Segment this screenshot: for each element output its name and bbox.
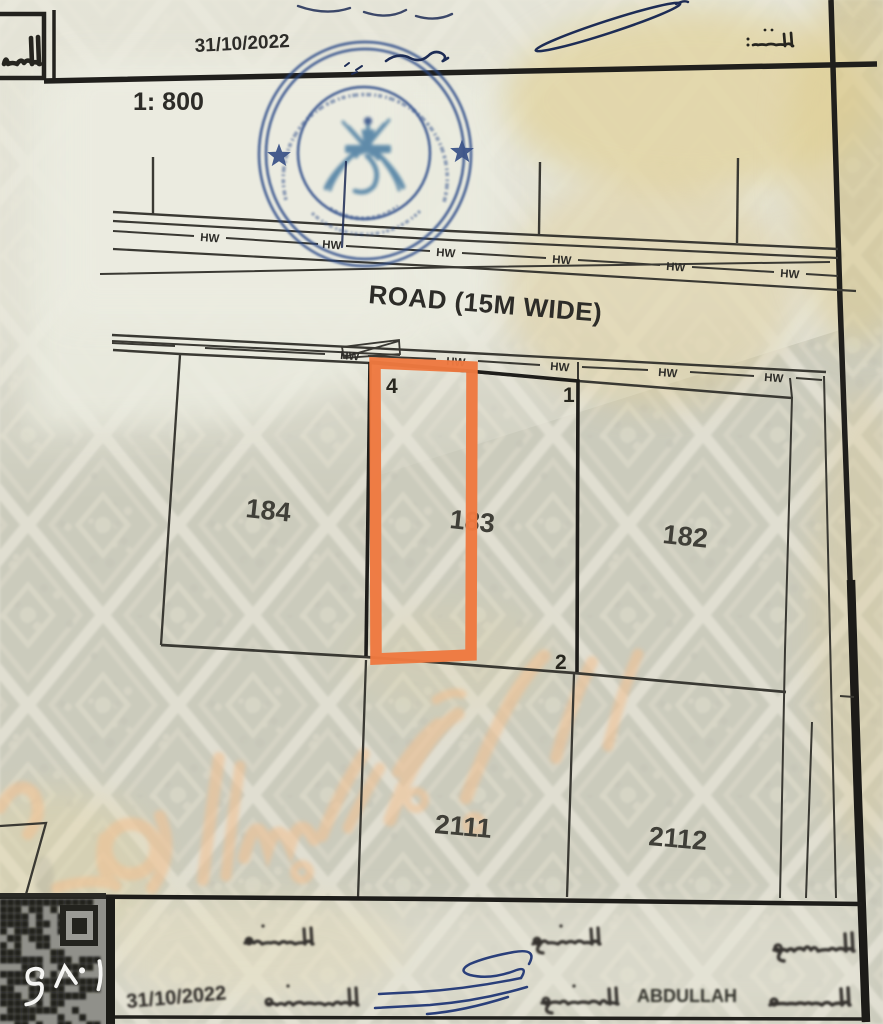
svg-text:HW: HW bbox=[666, 261, 686, 274]
svg-text:2111: 2111 bbox=[433, 809, 492, 844]
svg-text:HW: HW bbox=[550, 361, 570, 374]
svg-text:HW: HW bbox=[764, 372, 784, 385]
svg-text:184: 184 bbox=[244, 493, 292, 528]
svg-text:HW: HW bbox=[436, 247, 456, 260]
svg-text:HW: HW bbox=[552, 254, 572, 267]
svg-text:HW: HW bbox=[200, 232, 220, 245]
svg-text:ABDULLAH: ABDULLAH bbox=[637, 986, 737, 1006]
svg-text:4: 4 bbox=[386, 375, 398, 398]
svg-text:1: 1 bbox=[563, 384, 575, 407]
svg-text:1: 800: 1: 800 bbox=[133, 88, 204, 116]
svg-text:2: 2 bbox=[555, 651, 567, 674]
svg-text:HW: HW bbox=[658, 367, 678, 380]
svg-text:182: 182 bbox=[661, 519, 709, 554]
svg-text:2112: 2112 bbox=[647, 821, 708, 856]
svg-text:HW: HW bbox=[780, 268, 800, 281]
svg-text:HW: HW bbox=[340, 350, 360, 363]
